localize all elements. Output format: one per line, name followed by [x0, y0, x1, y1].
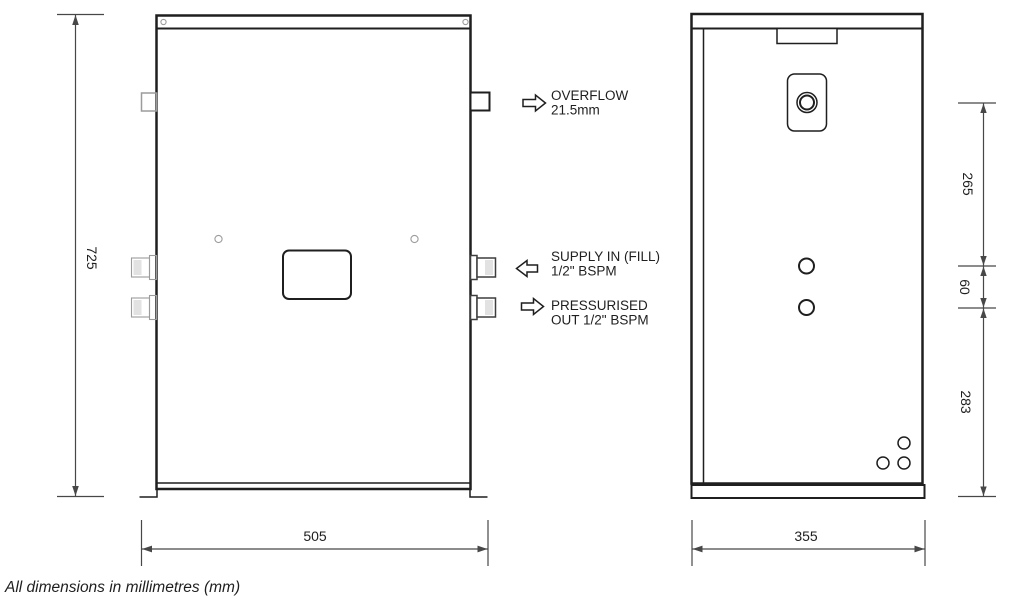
dim-arrow-down-icon [980, 487, 986, 497]
callout-pressurised: PRESSURISED OUT 1/2" BSPM [522, 298, 649, 328]
dimension-front-height: 725 [57, 15, 104, 497]
dim-arrow-down-icon [72, 486, 79, 496]
flow-in-arrow-icon [517, 261, 538, 277]
left-connector-supply [132, 256, 157, 280]
right-connector-supply-flange [471, 256, 478, 280]
overflow-label-line2: 21.5mm [551, 103, 600, 118]
right-connector-pressurised [471, 296, 496, 320]
dimension-front-width: 505 [142, 520, 489, 566]
callout-supply: SUPPLY IN (FILL) 1/2" BSPM [517, 249, 661, 279]
dim-arrow-right-icon [478, 546, 488, 553]
pressurised-label-line2: OUT 1/2" BSPM [551, 313, 649, 328]
units-note: All dimensions in millimetres (mm) [4, 579, 240, 596]
side-valve-plate [788, 74, 827, 131]
right-connector-pressurised-thread [485, 300, 493, 315]
overflow-label-line1: OVERFLOW [551, 88, 629, 103]
dim-label-725: 725 [84, 246, 100, 270]
dim-label-283: 283 [958, 390, 974, 414]
flow-out-arrow-icon [522, 299, 544, 315]
overflow-stub-left [142, 93, 157, 111]
dim-arrow-down-icon [980, 298, 986, 308]
supply-label-line2: 1/2" BSPM [551, 264, 617, 279]
dim-label-265: 265 [960, 172, 976, 196]
callout-overflow: OVERFLOW 21.5mm [523, 88, 629, 118]
front-nameplate [283, 251, 351, 300]
dim-arrow-left-icon [693, 546, 703, 553]
side-top-vent [777, 29, 837, 44]
dim-label-60: 60 [957, 279, 973, 295]
right-connector-supply-thread [485, 260, 493, 275]
dim-label-355: 355 [794, 528, 818, 544]
front-view [132, 16, 496, 498]
dim-label-505: 505 [303, 528, 327, 544]
side-view [692, 14, 925, 498]
dim-arrow-up-icon [72, 15, 79, 25]
technical-drawing-page: 725 505 355 265 60 283 OVE [0, 0, 1022, 605]
dimension-side-width: 355 [692, 520, 925, 566]
flow-out-arrow-icon [523, 95, 546, 111]
left-connector-pressurised-thread [134, 300, 142, 315]
right-connector-supply [471, 256, 496, 280]
right-connector-pressurised-flange [471, 296, 478, 320]
side-base-plate [692, 485, 925, 498]
supply-label-line1: SUPPLY IN (FILL) [551, 249, 660, 264]
front-foot-left [140, 489, 158, 497]
dim-arrow-down-icon [980, 256, 986, 266]
drawing-canvas: 725 505 355 265 60 283 OVE [0, 0, 1022, 605]
pressurised-label-line1: PRESSURISED [551, 298, 648, 313]
left-connector-pressurised [132, 296, 157, 320]
left-connector-supply-thread [134, 260, 142, 275]
dim-arrow-up-icon [980, 104, 986, 114]
front-foot-right [470, 489, 488, 497]
dim-arrow-right-icon [915, 546, 925, 553]
overflow-stub-right [471, 93, 490, 111]
dim-arrow-up-icon [980, 309, 986, 319]
dim-arrow-left-icon [142, 546, 152, 553]
dim-arrow-up-icon [980, 267, 986, 277]
dimension-side-chain: 265 60 283 [957, 103, 996, 497]
